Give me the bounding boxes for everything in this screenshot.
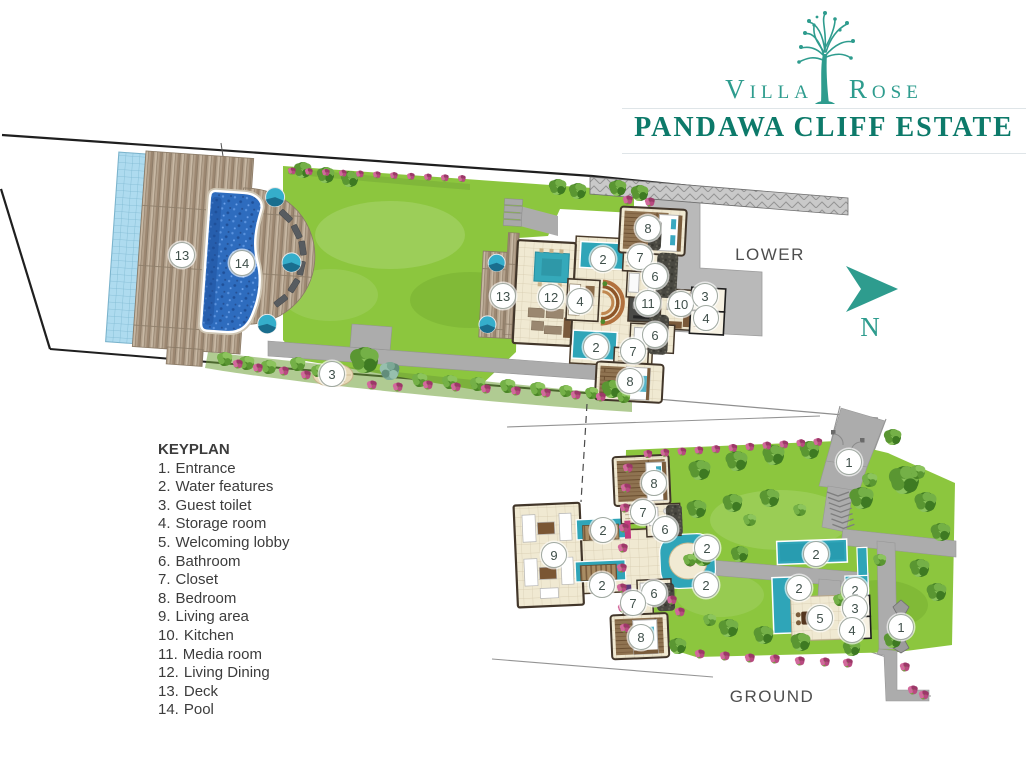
- north-arrow-icon: [846, 266, 898, 312]
- ground-boundary-bottom: [492, 659, 713, 677]
- keyplan-item: 6.Bathroom: [158, 553, 289, 572]
- keyplan-item: 8.Bedroom: [158, 590, 289, 609]
- keyplan-item: 10.Kitchen: [158, 627, 289, 646]
- keyplan-legend: KEYPLAN 1.Entrance2.Water features3.Gues…: [158, 441, 289, 720]
- lower-plan-label: LOWER: [722, 245, 818, 265]
- north-label: N: [852, 312, 888, 343]
- ground-boundary-top: [507, 416, 820, 427]
- keyplan-item: 9.Living area: [158, 608, 289, 627]
- logo: Villa Rose PANDAWA CLIFF ESTATE: [622, 8, 1026, 158]
- keyplan-item: 4.Storage room: [158, 515, 289, 534]
- keyplan-item: 11.Media room: [158, 646, 289, 665]
- villa-rose-site-plan-page: Villa Rose PANDAWA CLIFF ESTATE LOWER GR…: [0, 0, 1028, 760]
- keyplan-item: 2.Water features: [158, 478, 289, 497]
- storage-room: [689, 310, 724, 335]
- ground-plan: [492, 404, 956, 701]
- keyplan-item: 7.Closet: [158, 571, 289, 590]
- pebble-garden: [655, 252, 678, 298]
- keyplan-item: 3.Guest toilet: [158, 497, 289, 516]
- keyplan-item: 14.Pool: [158, 701, 289, 720]
- guest-toilet: [846, 595, 871, 617]
- section-line: [581, 404, 587, 502]
- ground-plan-label: GROUND: [712, 687, 832, 707]
- keyplan-item: 5.Welcoming lobby: [158, 534, 289, 553]
- bridge-steps: [580, 564, 617, 581]
- logo-divider: [622, 108, 1026, 109]
- brand-name: Villa Rose: [622, 74, 1026, 105]
- logo-divider: [622, 153, 1026, 154]
- estate-name: PANDAWA CLIFF ESTATE: [622, 112, 1026, 144]
- brand-first-word: Villa: [725, 74, 813, 105]
- lower-boundary-left: [1, 189, 50, 349]
- bridge-steps: [582, 524, 619, 541]
- water-feature: [845, 575, 869, 597]
- water-feature: [572, 330, 617, 360]
- keyplan-item: 1.Entrance: [158, 460, 289, 479]
- guest-toilet: [691, 287, 726, 312]
- keyplan-item: 13.Deck: [158, 683, 289, 702]
- keyplan-title: KEYPLAN: [158, 441, 289, 460]
- brand-second-word: Rose: [849, 74, 923, 105]
- keyplan-item: 12.Living Dining: [158, 664, 289, 683]
- lower-plan: [1, 135, 878, 418]
